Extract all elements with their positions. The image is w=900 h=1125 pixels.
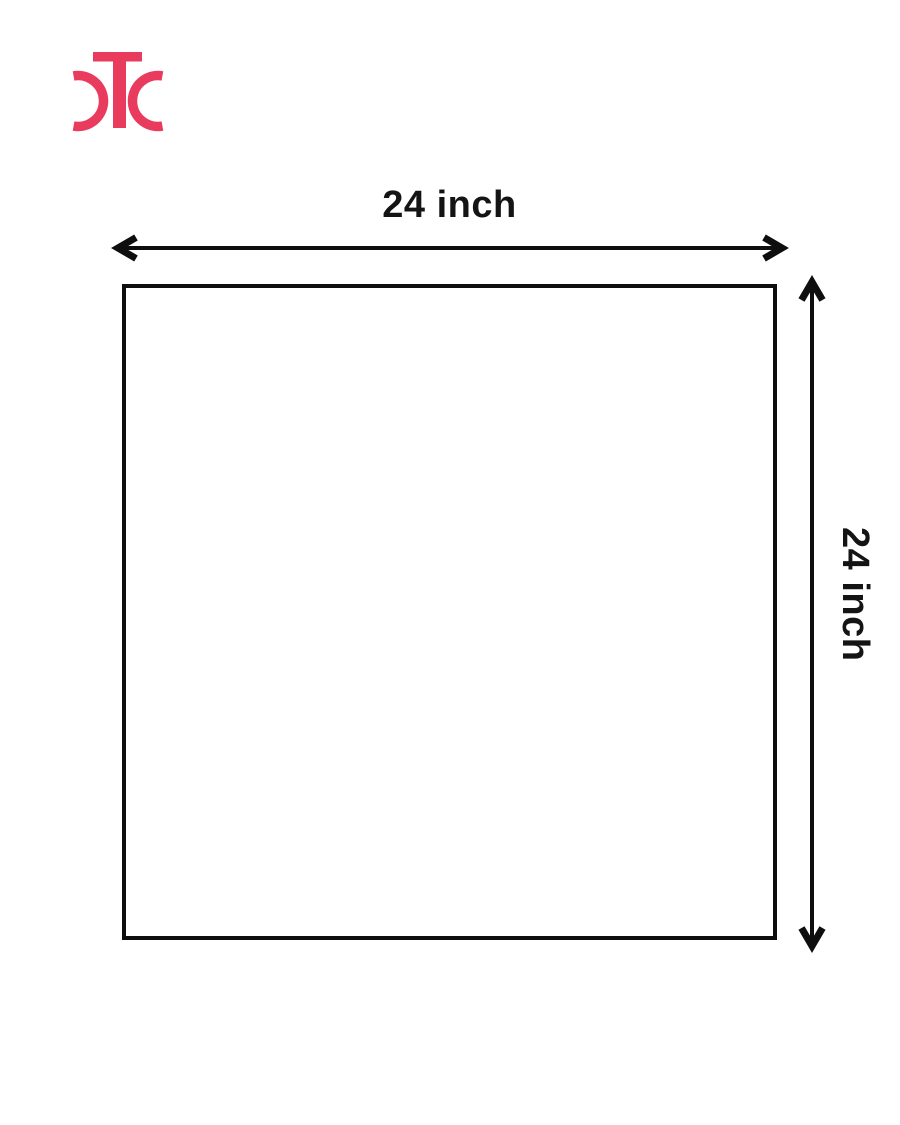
ctc-logo xyxy=(68,51,168,136)
vertical-double-arrow-icon xyxy=(796,274,828,954)
diagram-canvas: 24 inch 24 inch xyxy=(0,0,900,1125)
top-dimension-label: 24 inch xyxy=(122,184,777,227)
right-dimension-label: 24 inch xyxy=(833,527,876,661)
horizontal-double-arrow-icon xyxy=(110,232,790,264)
logo-right-c xyxy=(132,76,162,127)
product-outline-square xyxy=(122,284,777,940)
logo-reversed-c xyxy=(74,76,104,127)
